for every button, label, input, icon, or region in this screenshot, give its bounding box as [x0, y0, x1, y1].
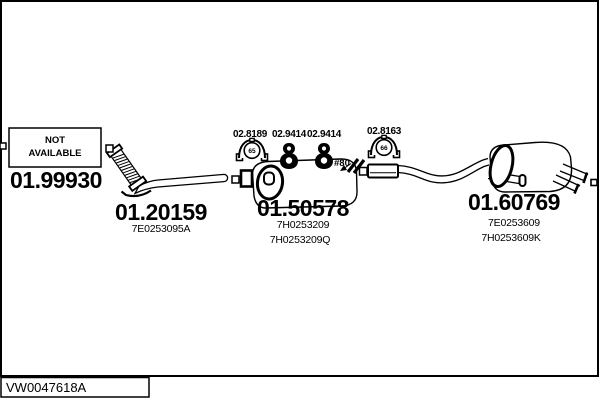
oem-number-rear-muffler-2: 7H0253609K: [481, 232, 540, 244]
pipe-sleeve: [368, 165, 398, 178]
diagram-code-box: VW0047618A: [1, 378, 149, 398]
oem-number-center-muffler-1: 7H0253209: [277, 219, 330, 231]
sleeve-connector-marker: [360, 168, 368, 176]
fitting-label-hanger-2[interactable]: 02.9414: [307, 129, 342, 140]
oem-number-rear-muffler-1: 7E0253609: [488, 217, 540, 229]
tailpipe-connector-marker: [591, 180, 597, 186]
not-available-line2: AVAILABLE: [29, 148, 82, 159]
fitting-label-clamp-1[interactable]: 02.8189: [233, 129, 268, 140]
fitting-label-clamp-2[interactable]: 02.8163: [367, 126, 402, 137]
diagram-code: VW0047618A: [6, 380, 87, 395]
fitting-label-hanger-1[interactable]: 02.9414: [272, 129, 307, 140]
part-number-center-muffler[interactable]: 01.50578: [257, 195, 350, 221]
inner-pipe-stub: [264, 173, 274, 185]
diagram-canvas: 65 66 #80 NOT AVAILABLE 01.99930 01.2015…: [0, 0, 600, 400]
inlet-flange: [241, 171, 252, 187]
not-available-line1: NOT: [45, 135, 65, 146]
clamp-diameter-label: 66: [380, 145, 388, 152]
exhaust-diagram-page: 65 66 #80 NOT AVAILABLE 01.99930 01.2015…: [0, 0, 600, 400]
rear-inner-pipe-end: [520, 175, 526, 186]
inlet-connector-marker: [232, 176, 239, 183]
part-number-unavailable[interactable]: 01.99930: [10, 167, 102, 193]
clamp-diameter-label: 65: [248, 148, 256, 155]
frame-connector-marker: [0, 143, 6, 149]
annotation-label: #80: [334, 158, 350, 169]
flex-connector-marker: [106, 145, 113, 152]
oem-number-center-muffler-2: 7H0253209Q: [270, 234, 330, 246]
part-number-front-pipe[interactable]: 01.20159: [115, 199, 207, 225]
part-number-rear-muffler[interactable]: 01.60769: [468, 189, 560, 215]
not-available-box: NOT AVAILABLE: [9, 128, 101, 167]
oem-number-front-pipe: 7E0253095A: [132, 223, 191, 235]
